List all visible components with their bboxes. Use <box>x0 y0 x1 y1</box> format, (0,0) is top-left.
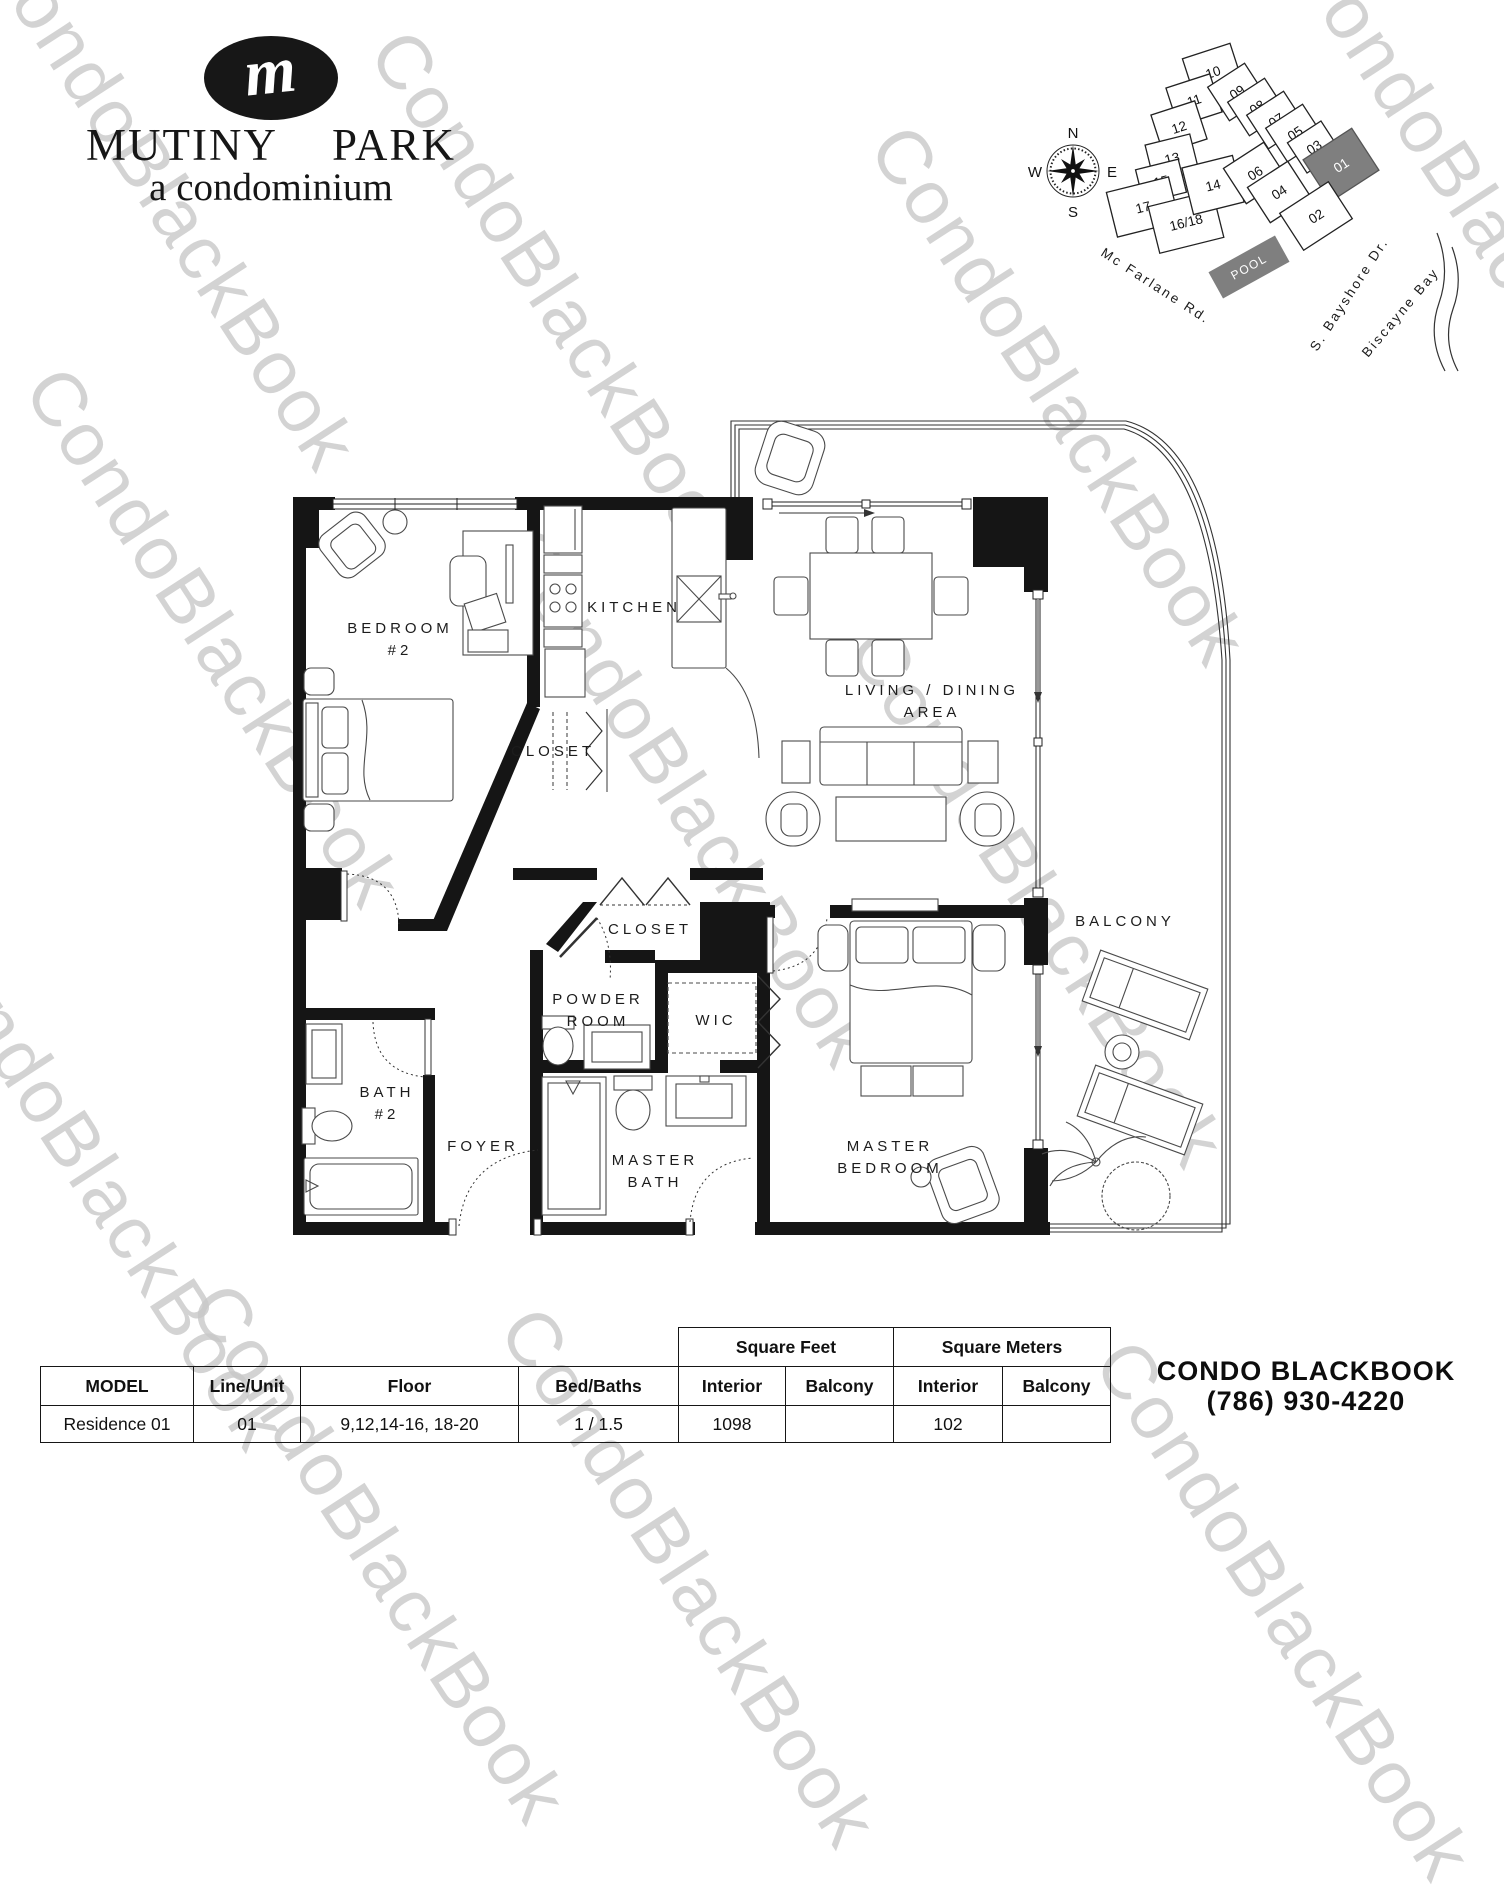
keyplan-pool: POOL <box>1208 235 1289 298</box>
compass-s: S <box>1068 204 1078 221</box>
brand-word-2: PARK <box>332 122 456 168</box>
cell-floor: 9,12,14-16, 18-20 <box>301 1406 519 1443</box>
col-header-model: MODEL <box>41 1367 194 1406</box>
room-label-master-bath-2: BATH <box>628 1174 683 1191</box>
street-mcfarlane: Mc Farlane Rd. <box>1098 245 1213 327</box>
col-header-sqft-interior: Interior <box>679 1367 786 1406</box>
col-header-sqm-interior: Interior <box>894 1367 1003 1406</box>
room-label-master-bed: MASTER <box>847 1138 934 1155</box>
bay-waves-icon <box>1434 233 1458 371</box>
cell-sqft-balcony <box>786 1406 894 1443</box>
room-label-master-bath: MASTER <box>612 1152 699 1169</box>
brand-name: MUTINY PARK <box>66 122 476 168</box>
room-label-foyer: FOYER <box>447 1138 519 1155</box>
room-label-closet-upper: CLOSET <box>511 743 595 760</box>
floorplan-drawing: 10 11 12 13 15 17 16/18 14 09 08 07 05 0… <box>0 0 1504 1503</box>
footer-brand-name: CONDO BLACKBOOK <box>1128 1356 1484 1386</box>
room-label-master-bed-2: BEDROOM <box>837 1160 943 1177</box>
cell-bed-baths: 1 / 1.5 <box>519 1406 679 1443</box>
col-header-sqft-balcony: Balcony <box>786 1367 894 1406</box>
cell-sqm-interior: 102 <box>894 1406 1003 1443</box>
cell-line-unit: 01 <box>194 1406 301 1443</box>
brand-tagline: a condominium <box>66 168 476 208</box>
cell-sqm-balcony <box>1003 1406 1111 1443</box>
room-label-powder: POWDER <box>552 991 644 1008</box>
col-header-line-unit: Line/Unit <box>194 1367 301 1406</box>
col-group-square-meters: Square Meters <box>894 1328 1111 1367</box>
compass-e: E <box>1107 164 1117 181</box>
room-label-wic: WIC <box>695 1012 736 1029</box>
room-label-bedroom2-num: #2 <box>388 642 413 659</box>
room-label-kitchen: KITCHEN <box>587 599 681 616</box>
room-label-bath2-num: #2 <box>375 1106 400 1123</box>
street-biscayne: Biscayne Bay <box>1359 265 1442 360</box>
brand-word-1: MUTINY <box>86 122 278 168</box>
room-label-bath2: BATH <box>360 1084 415 1101</box>
cell-sqft-interior: 1098 <box>679 1406 786 1443</box>
footer-brand: CONDO BLACKBOOK (786) 930-4220 <box>1128 1356 1484 1416</box>
cell-model: Residence 01 <box>41 1406 194 1443</box>
compass-w: W <box>1028 164 1043 181</box>
spec-table: Square Feet Square Meters MODEL Line/Uni… <box>40 1327 1111 1443</box>
col-group-square-feet: Square Feet <box>679 1328 894 1367</box>
furniture <box>302 417 1208 1230</box>
room-label-powder-2: ROOM <box>567 1013 630 1030</box>
room-label-living: LIVING / DINING <box>845 682 1019 699</box>
keyplan: 10 11 12 13 15 17 16/18 14 09 08 07 05 0… <box>1028 43 1458 371</box>
footer-phone: (786) 930-4220 <box>1128 1386 1484 1416</box>
compass-n: N <box>1068 125 1079 142</box>
room-label-living-2: AREA <box>904 704 961 721</box>
compass-rose-icon: N S W E <box>1028 125 1117 221</box>
logo-oval-monogram-icon: m <box>204 36 338 120</box>
col-header-sqm-balcony: Balcony <box>1003 1367 1111 1406</box>
floorplan-sheet: { "page": {"background": "#ffffff"}, "wa… <box>0 0 1504 1503</box>
col-header-bed-baths: Bed/Baths <box>519 1367 679 1406</box>
col-header-floor: Floor <box>301 1367 519 1406</box>
room-label-bedroom2: BEDROOM <box>347 620 453 637</box>
room-label-balcony: BALCONY <box>1075 913 1175 930</box>
table-row: Residence 01 01 9,12,14-16, 18-20 1 / 1.… <box>41 1406 1111 1443</box>
room-label-closet-lower: CLOSET <box>608 921 692 938</box>
brand-logo: m MUTINY PARK a condominium <box>66 36 476 208</box>
